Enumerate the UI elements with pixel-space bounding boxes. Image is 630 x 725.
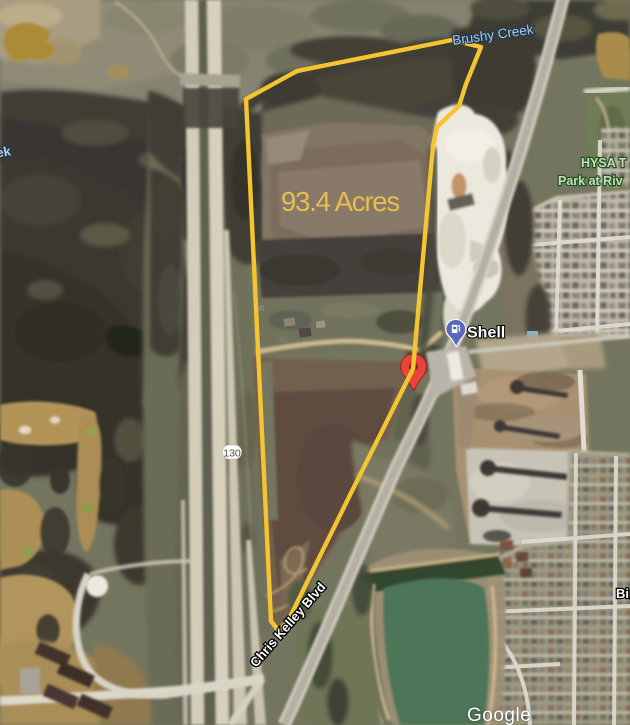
svg-text:Google: Google [467, 705, 531, 725]
svg-text:93.4 Acres: 93.4 Acres [281, 186, 399, 217]
svg-text:Park at Riv: Park at Riv [558, 174, 623, 188]
svg-text:HYSA T: HYSA T [581, 156, 627, 170]
svg-text:130: 130 [223, 448, 241, 460]
svg-text:Bir: Bir [616, 586, 630, 601]
svg-text:Shell: Shell [467, 325, 505, 342]
